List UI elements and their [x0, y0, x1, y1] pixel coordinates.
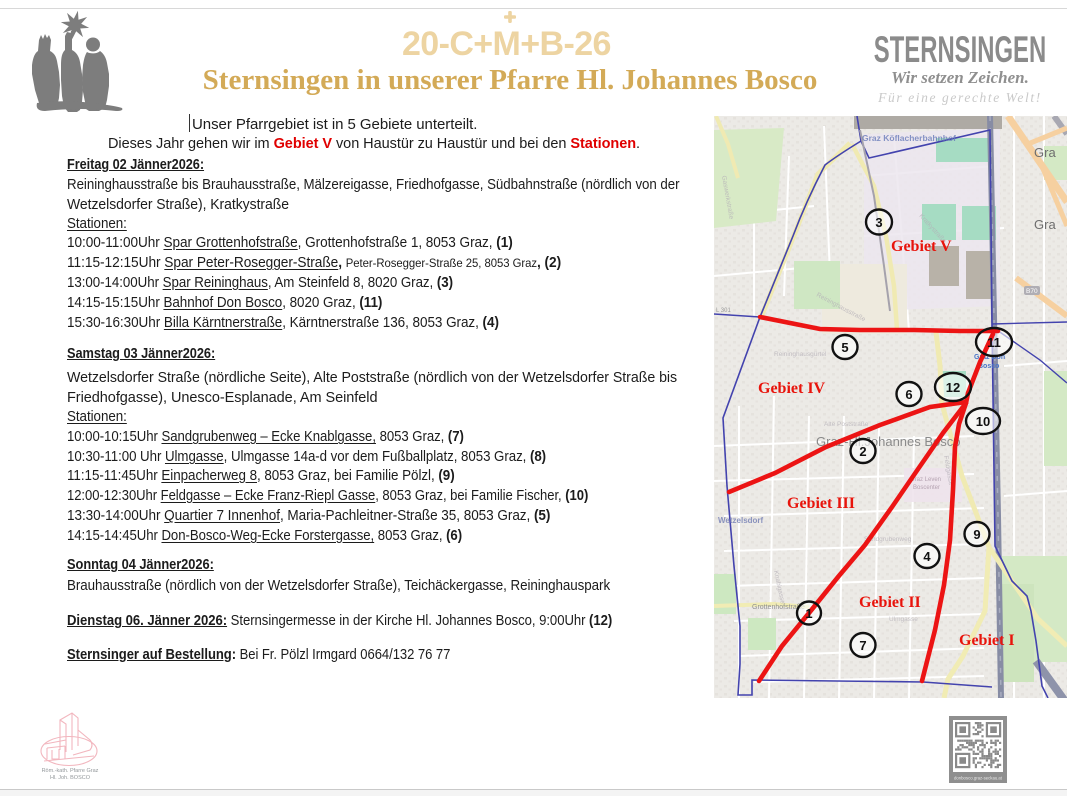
svg-text:2: 2: [859, 444, 866, 459]
svg-text:Reininghausgürtel: Reininghausgürtel: [774, 351, 827, 358]
svg-text:Gebiet V: Gebiet V: [891, 238, 952, 255]
svg-text:11: 11: [987, 335, 1001, 350]
svg-text:3: 3: [875, 215, 882, 230]
svg-text:Gebiet II: Gebiet II: [859, 594, 921, 611]
svg-text:5: 5: [841, 340, 848, 355]
svg-text:Ulmgasse: Ulmgasse: [889, 616, 918, 623]
svg-text:9: 9: [973, 527, 980, 542]
svg-text:Alte Poststraße: Alte Poststraße: [824, 421, 869, 428]
svg-text:Gebiet IV: Gebiet IV: [758, 380, 826, 397]
svg-text:Wetzelsdorf: Wetzelsdorf: [718, 516, 764, 525]
svg-text:12: 12: [946, 380, 960, 395]
svg-text:Gebiet I: Gebiet I: [959, 632, 1015, 649]
svg-text:Graz Köflacherbahnhof: Graz Köflacherbahnhof: [862, 133, 956, 143]
svg-text:Boscenter: Boscenter: [913, 485, 940, 491]
svg-text:L 301: L 301: [716, 308, 731, 314]
svg-text:6: 6: [905, 387, 912, 402]
svg-text:donbosco.graz-seckau.at: donbosco.graz-seckau.at: [954, 776, 1003, 781]
svg-text:10: 10: [976, 414, 990, 429]
svg-text:7: 7: [859, 638, 866, 653]
svg-text:4: 4: [923, 549, 931, 564]
svg-text:Gra: Gra: [1034, 217, 1056, 232]
svg-text:B70: B70: [1026, 288, 1038, 295]
svg-text:1: 1: [805, 606, 812, 621]
svg-text:Gebiet III: Gebiet III: [787, 495, 855, 512]
svg-text:Gra: Gra: [1034, 145, 1056, 160]
